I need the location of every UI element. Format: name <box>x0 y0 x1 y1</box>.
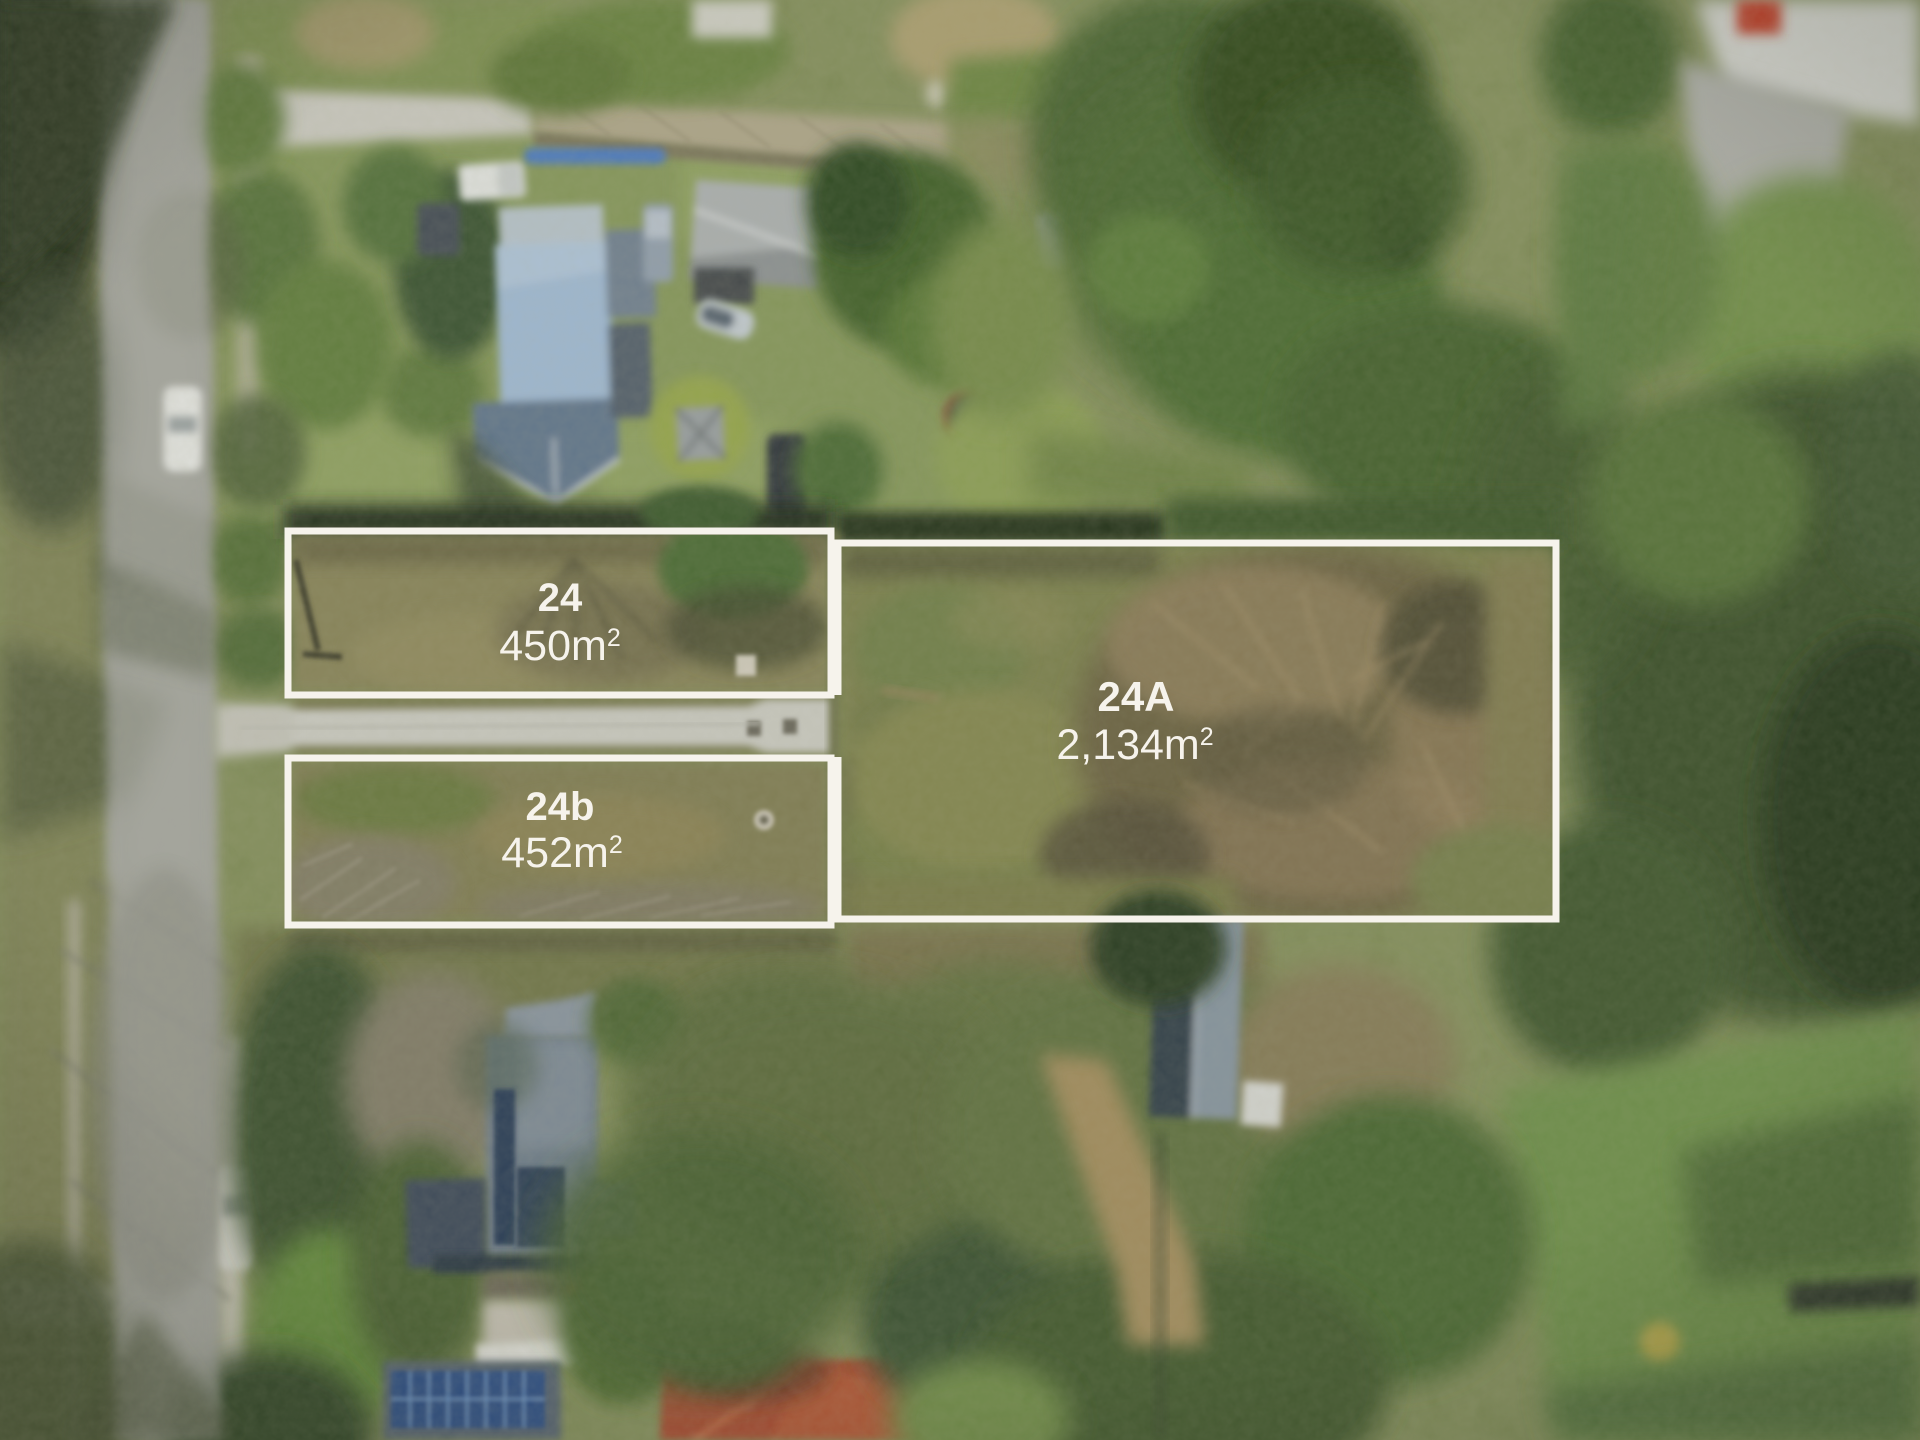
svg-text:24A: 24A <box>1097 673 1174 720</box>
svg-text:24b: 24b <box>526 785 595 829</box>
svg-text:2,134m2: 2,134m2 <box>1056 721 1213 769</box>
svg-text:452m2: 452m2 <box>501 829 622 877</box>
svg-text:24: 24 <box>538 576 583 620</box>
svg-text:450m2: 450m2 <box>499 622 620 670</box>
